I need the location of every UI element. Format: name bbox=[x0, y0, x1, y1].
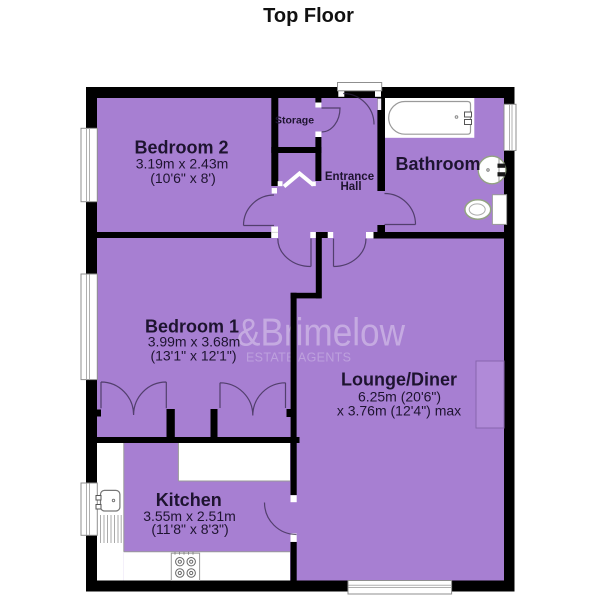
svg-text:&Brimelow: &Brimelow bbox=[237, 312, 406, 355]
svg-text:Hall: Hall bbox=[340, 181, 361, 193]
svg-text:Bedroom 2: Bedroom 2 bbox=[134, 138, 228, 158]
svg-text:(10'6" x 8'): (10'6" x 8') bbox=[150, 170, 216, 186]
svg-text:Kitchen: Kitchen bbox=[156, 490, 222, 510]
svg-text:(11'8" x 8'3"): (11'8" x 8'3") bbox=[151, 521, 228, 537]
svg-text:Storage: Storage bbox=[275, 115, 314, 127]
svg-text:Lounge/Diner: Lounge/Diner bbox=[341, 370, 457, 390]
svg-text:Bathroom: Bathroom bbox=[396, 154, 481, 174]
svg-text:ESTATE AGENTS: ESTATE AGENTS bbox=[246, 351, 351, 365]
svg-text:x 3.76m (12'4") max: x 3.76m (12'4") max bbox=[337, 403, 461, 419]
svg-text:Top Floor: Top Floor bbox=[263, 5, 354, 27]
svg-text:(13'1" x 12'1"): (13'1" x 12'1") bbox=[150, 348, 236, 364]
